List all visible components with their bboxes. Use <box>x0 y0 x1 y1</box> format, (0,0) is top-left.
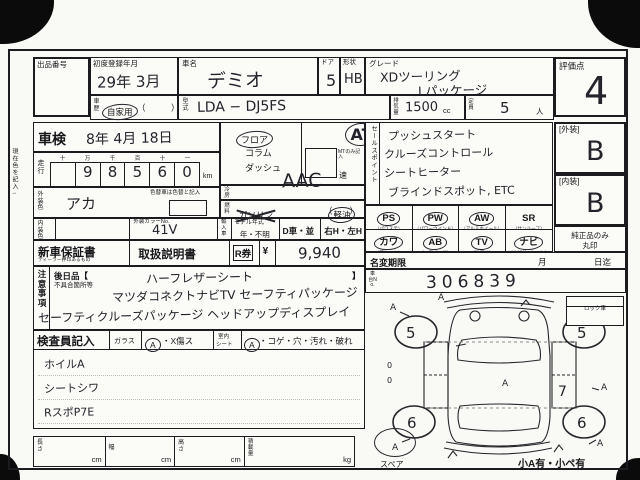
exterior-color-box: 外装色 アカ 色替車は色替と記入 <box>33 187 220 218</box>
documents-row: 新車保証書 ディーラー押印あるもの 取扱説明書 R券 ¥ 9,940 <box>33 240 365 266</box>
shift-floor-option: フロア <box>241 133 268 146</box>
shaken-box: 車検 8年 4月 18日 <box>33 122 220 152</box>
equipment-cell-aw: AW （アルミホイール） <box>459 206 506 229</box>
length-cell: 長さ cm <box>34 437 106 466</box>
inspector-label-cell: 検査員記入 <box>34 331 110 349</box>
height-cell: 高さ cm <box>175 437 245 466</box>
exterior-color-value: アカ <box>66 193 96 215</box>
yen-sign: ¥ <box>263 246 269 257</box>
door-value: 5 <box>326 71 336 90</box>
inspector-block: 検査員記入 ガラス A ・X傷ス 室内 シート A ・コゲ・穴・汚れ・破れ ホイ… <box>33 330 365 429</box>
windshield-outline <box>458 337 541 363</box>
notes-block: 注意事項 後日品【 】 不具合箇所等 ハーフレザーシート マツダコネクトナビTV… <box>33 266 365 330</box>
vehicle-history-label: 車歴 <box>92 99 101 112</box>
yen-cell: ¥ <box>260 241 276 265</box>
color-number-value: 41V <box>152 223 178 239</box>
handle-options: 右H・左H <box>324 225 362 237</box>
inspector-header: 検査員記入 ガラス A ・X傷ス 室内 シート A ・コゲ・穴・汚れ・破れ <box>34 331 364 350</box>
equipment-code: PW <box>428 214 443 224</box>
shaken-value: 8年 4月 18日 <box>86 127 173 149</box>
equipment-code: PS <box>382 214 395 224</box>
damage-mark-a: A <box>597 439 604 449</box>
color-change-note: 色替車は色替と記入 <box>150 191 200 197</box>
color-number-cell: 外装カラーNo. 41V <box>130 219 217 239</box>
vehicle-history-value: 自家用 <box>107 106 133 118</box>
interior-rating-box: [内装] B <box>554 174 626 226</box>
aircon-value: AAC <box>282 170 322 193</box>
mileage-digit-headers: 十 万 千 百 十 一 <box>50 154 200 162</box>
equipment-cell-pw: PW （パワーウインド） <box>413 206 460 229</box>
capacity-label: 定員 <box>467 99 475 111</box>
equipment-sub-label: （エアバッグ） <box>413 250 459 252</box>
front-left-wheel-circle <box>395 316 437 348</box>
auction-sheet-scan: 現在色を記入→ 出品番号 初度登録年月 29年 3月 車歴 自家用 （ ） 車名… <box>0 0 640 480</box>
notes-line: ハーフレザーシート <box>146 268 253 287</box>
seat-option-a: A <box>249 340 255 350</box>
displacement-value: 1500 <box>405 100 438 116</box>
exhibit-number-label: 出品番号 <box>37 61 67 69</box>
name-change-row: 名変期限 月 日迄 <box>365 252 626 269</box>
shift-dash-option: ダッシュ <box>245 161 281 174</box>
fuel-row: 燃料 ガソリン 軽油 （ ） <box>220 200 365 218</box>
scan-corner-artifact <box>588 0 640 48</box>
model-year-unknown: 年・不明 <box>240 229 270 240</box>
seat-label-cell: 室内 シート <box>214 331 242 349</box>
inspector-note-line: シートシワ <box>44 379 99 396</box>
first-registration-box: 初度登録年月 29年 3月 <box>90 57 178 95</box>
tire-depth-front-right: 5 <box>577 324 587 342</box>
writing-line <box>38 375 360 376</box>
import-car-cell: 輸入車 <box>218 219 232 239</box>
recycle-fee-value: 9,940 <box>297 244 340 263</box>
equipment-cell-ps: PS （パワステ） <box>366 206 413 229</box>
mileage-box: 走行 十 万 千 百 十 一 9 8 5 6 0 km <box>33 152 220 187</box>
dimensions-row: 長さ cm 幅 cm 高さ cm 積載量 kg <box>33 436 355 467</box>
capacity-value: 5 <box>500 99 510 117</box>
sales-points-label: セールスポイント <box>369 125 378 203</box>
width-cell: 幅 cm <box>106 437 176 466</box>
later-items-label: 後日品【 <box>54 270 88 282</box>
inspector-label: 検査員記入 <box>37 333 95 349</box>
load-capacity-label: 積載量 <box>247 439 255 457</box>
interior-rating-label: [内装] <box>559 178 579 186</box>
first-registration-value: 29年 3月 <box>97 70 161 92</box>
dealer-car-options: D車・並 <box>283 225 315 237</box>
equipment-cell-ab: AB （エアバッグ） <box>413 229 460 252</box>
manual-label: 取扱説明書 <box>138 246 196 262</box>
fuel-gasoline-option: ガソリン <box>239 209 273 221</box>
model-code-box: 型式 LDA − DJ5FS <box>178 95 390 120</box>
height-label: 高さ <box>177 440 185 453</box>
exterior-rating-label: [外装] <box>559 126 579 134</box>
exhibit-number-box: 出品番号 <box>33 57 90 117</box>
vehicle-history-box: 車歴 自家用 （ ） <box>90 95 178 120</box>
sales-point-line: プッシュスタート <box>388 126 476 144</box>
chassis-number-label: 車台No. <box>368 272 377 289</box>
later-items-close: 】 <box>352 270 361 282</box>
length-unit: cm <box>92 455 102 464</box>
warranty-cell: 新車保証書 ディーラー押印あるもの <box>34 241 130 265</box>
car-name-value: デミオ <box>207 65 265 93</box>
load-capacity-unit: kg <box>343 455 351 464</box>
defect-label: 不具合箇所等 <box>54 283 93 290</box>
mileage-digit: 9 <box>75 162 100 188</box>
mt-note: MTのみ記入 <box>338 150 364 161</box>
sales-point-line: クルーズコントロール <box>384 144 493 162</box>
length-label: 長さ <box>36 440 44 453</box>
door-label: ドア <box>321 60 334 67</box>
notes-line: セーフティクルーズパッケージ ヘッドアップディスプレイ <box>38 303 351 327</box>
capacity-box: 定員 5 人 <box>465 95 554 120</box>
glass-options-cell: A ・X傷ス <box>142 331 214 349</box>
displacement-unit: cc <box>443 106 451 115</box>
fuel-paren: （ ） <box>324 205 358 217</box>
warranty-sub-label: ディーラー押印あるもの <box>38 258 90 263</box>
first-registration-label: 初度登録年月 <box>93 60 138 68</box>
glass-label: ガラス <box>114 336 135 346</box>
capacity-unit: 人 <box>536 106 544 117</box>
exterior-color-label: 外装色 <box>36 192 45 212</box>
mileage-digit-cells: 9 8 5 6 0 <box>50 162 200 188</box>
digit-header: 百 <box>125 154 150 162</box>
lock-car-label-strip: ロック車 <box>567 297 623 307</box>
aircon-label: 冷房 <box>223 187 231 199</box>
model-year-cell: モデル年式 年・不明 <box>232 219 280 239</box>
tire-depth-rear-left: 6 <box>407 414 417 432</box>
equipment-code: SR <box>522 213 535 224</box>
interior-color-value-cell <box>56 219 131 239</box>
manual-cell: 取扱説明書 <box>130 241 229 265</box>
genuine-parts-note-box: 純正品のみ 丸印 <box>554 226 626 252</box>
speed-label: 速 <box>339 170 347 181</box>
digit-header: 一 <box>175 154 200 162</box>
equipment-cell-tv: TV （地デジ） <box>459 229 506 252</box>
body-shape-box: 形状 HB <box>340 57 365 95</box>
height-unit: cm <box>231 455 241 464</box>
score-label: 評価点 <box>559 62 585 71</box>
exterior-rating-box: [外装] B <box>554 122 626 174</box>
digit-header: 千 <box>100 154 125 162</box>
cowl-circle-left <box>470 311 480 321</box>
sales-point-line: ブラインドスポット, ETC <box>388 182 515 201</box>
name-change-label: 名変期限 <box>370 256 406 269</box>
glass-label-cell: ガラス <box>110 331 142 349</box>
car-body-outline <box>448 308 550 447</box>
equipment-grid: PS （パワステ） PW （パワーウインド） AW （アルミホイール） SR （… <box>365 205 553 252</box>
equipment-cell-leather: カワ （革シート） <box>366 229 413 252</box>
displacement-label: 排気量 <box>392 98 400 116</box>
diagram-corner-note: 小A有・小ペ有 <box>518 455 585 470</box>
equipment-sub-label: （ナビゲーション） <box>506 250 553 252</box>
inspector-note-line: RスポP7E <box>44 403 95 420</box>
mileage-digit: 6 <box>149 162 174 188</box>
name-change-month: 月 <box>538 256 547 268</box>
margin-note: 現在色を記入→ <box>10 148 19 228</box>
equipment-cell-navi: ナビ （ナビゲーション） <box>506 229 553 252</box>
mileage-digit <box>50 162 75 188</box>
displacement-box: 排気量 1500 cc <box>390 95 465 120</box>
body-shape-value: HB <box>344 72 363 87</box>
car-name-box: 車名 デミオ <box>178 57 318 95</box>
equipment-code: TV <box>476 238 488 248</box>
equipment-cell-sr: SR （サンルーフ） <box>506 206 553 229</box>
scan-corner-artifact <box>0 0 54 44</box>
mileage-digit: 8 <box>100 162 125 188</box>
writing-line <box>38 399 360 400</box>
width-label: 幅 <box>108 445 116 452</box>
damage-mark-seven: 7 <box>558 384 567 400</box>
genuine-parts-note-line2: 丸印 <box>555 240 625 251</box>
tire-depth-front-left: 5 <box>406 324 416 342</box>
color-change-entry-box <box>169 200 207 216</box>
vehicle-history-paren: （ ） <box>137 102 180 114</box>
front-bumper-outline <box>444 296 554 302</box>
interior-color-cell: 内装色 <box>34 219 56 239</box>
mileage-label: 走行 <box>36 160 46 176</box>
damage-mark-zero: 0 <box>387 376 392 385</box>
damage-mark-a: A <box>601 383 608 393</box>
glass-option-a: A <box>150 340 156 350</box>
digit-header: 万 <box>75 154 100 162</box>
grade-box: グレード XDツーリング Lパッケージ <box>365 57 554 95</box>
sales-point-line: シートヒーター <box>384 163 461 181</box>
car-name-label: 車名 <box>182 60 197 68</box>
import-car-label: 輸入車 <box>220 220 228 237</box>
damage-mark-a: A <box>390 303 397 313</box>
cowl-circle-right <box>519 311 529 321</box>
model-code-label: 型式 <box>181 99 190 112</box>
damage-mark-a: A <box>438 293 445 303</box>
digit-header: 十 <box>150 154 175 162</box>
seat-label-line2: シート <box>216 340 233 348</box>
exterior-rating-value: B <box>586 136 605 167</box>
mileage-digit-grid: 十 万 千 百 十 一 9 8 5 6 0 <box>50 154 200 188</box>
sales-points-label-cell: セールスポイント <box>366 123 380 204</box>
score-value: 4 <box>584 69 608 113</box>
interior-rating-value: B <box>586 188 605 219</box>
shaken-label: 車検 <box>38 129 66 149</box>
seat-options: ・コゲ・穴・汚れ・破れ <box>259 335 353 347</box>
door-box: ドア 5 <box>318 57 340 95</box>
tire-depth-rear-right: 6 <box>577 414 587 432</box>
inspector-note-line: ホイルA <box>44 356 85 373</box>
seat-label-line1: 室内 <box>218 332 229 340</box>
fuel-label: 燃料 <box>223 203 231 215</box>
equipment-sub-label: （革シート） <box>366 250 412 252</box>
notes-label: 注意事項 <box>37 270 47 308</box>
handle-cell: 右H・左H <box>321 219 364 239</box>
glass-options: ・X傷ス <box>162 335 193 347</box>
equipment-code: AB <box>428 238 442 248</box>
rear-bumper-outline <box>444 448 552 454</box>
lock-car-label: ロック車 <box>584 306 606 312</box>
equipment-code: AW <box>474 214 489 224</box>
model-code-value: LDA − DJ5FS <box>197 98 286 116</box>
lock-car-box: ロック車 <box>566 296 624 326</box>
name-change-until: 日迄 <box>594 256 611 268</box>
digit-header: 十 <box>50 154 75 162</box>
writing-line <box>38 423 360 424</box>
mileage-digit: 0 <box>174 162 200 188</box>
load-capacity-cell: 積載量 kg <box>245 437 354 466</box>
body-shape-label: 形状 <box>343 60 356 67</box>
spare-tire-circle <box>374 428 416 457</box>
equipment-code: ナビ <box>519 238 538 248</box>
equipment-code: カワ <box>379 238 398 248</box>
equipment-sub-label: （地デジ） <box>459 250 505 252</box>
recycle-ticket-label: R券 <box>233 245 253 261</box>
mileage-unit: km <box>203 173 212 180</box>
shift-column-option: コラム <box>245 146 272 159</box>
interior-color-label: 内装色 <box>36 221 45 241</box>
spare-tire-label: スペア <box>380 459 403 470</box>
damage-mark-zero: 0 <box>387 361 392 370</box>
recycle-ticket-cell: R券 <box>230 241 260 265</box>
damage-mark-a: A <box>502 379 509 389</box>
sales-points-box: セールスポイント プッシュスタート クルーズコントロール シートヒーター ブライ… <box>365 122 553 205</box>
mileage-digit: 5 <box>124 162 149 188</box>
interior-color-row: 内装色 外装カラーNo. 41V 輸入車 モデル年式 年・不明 D車・並 右H・… <box>33 218 365 240</box>
score-box: 評価点 4 <box>554 57 626 117</box>
dealer-car-cell: D車・並 <box>280 219 322 239</box>
recycle-fee-cell: 9,940 <box>276 241 364 265</box>
seat-options-cell: A ・コゲ・穴・汚れ・破れ <box>242 331 364 349</box>
width-unit: cm <box>161 455 171 464</box>
